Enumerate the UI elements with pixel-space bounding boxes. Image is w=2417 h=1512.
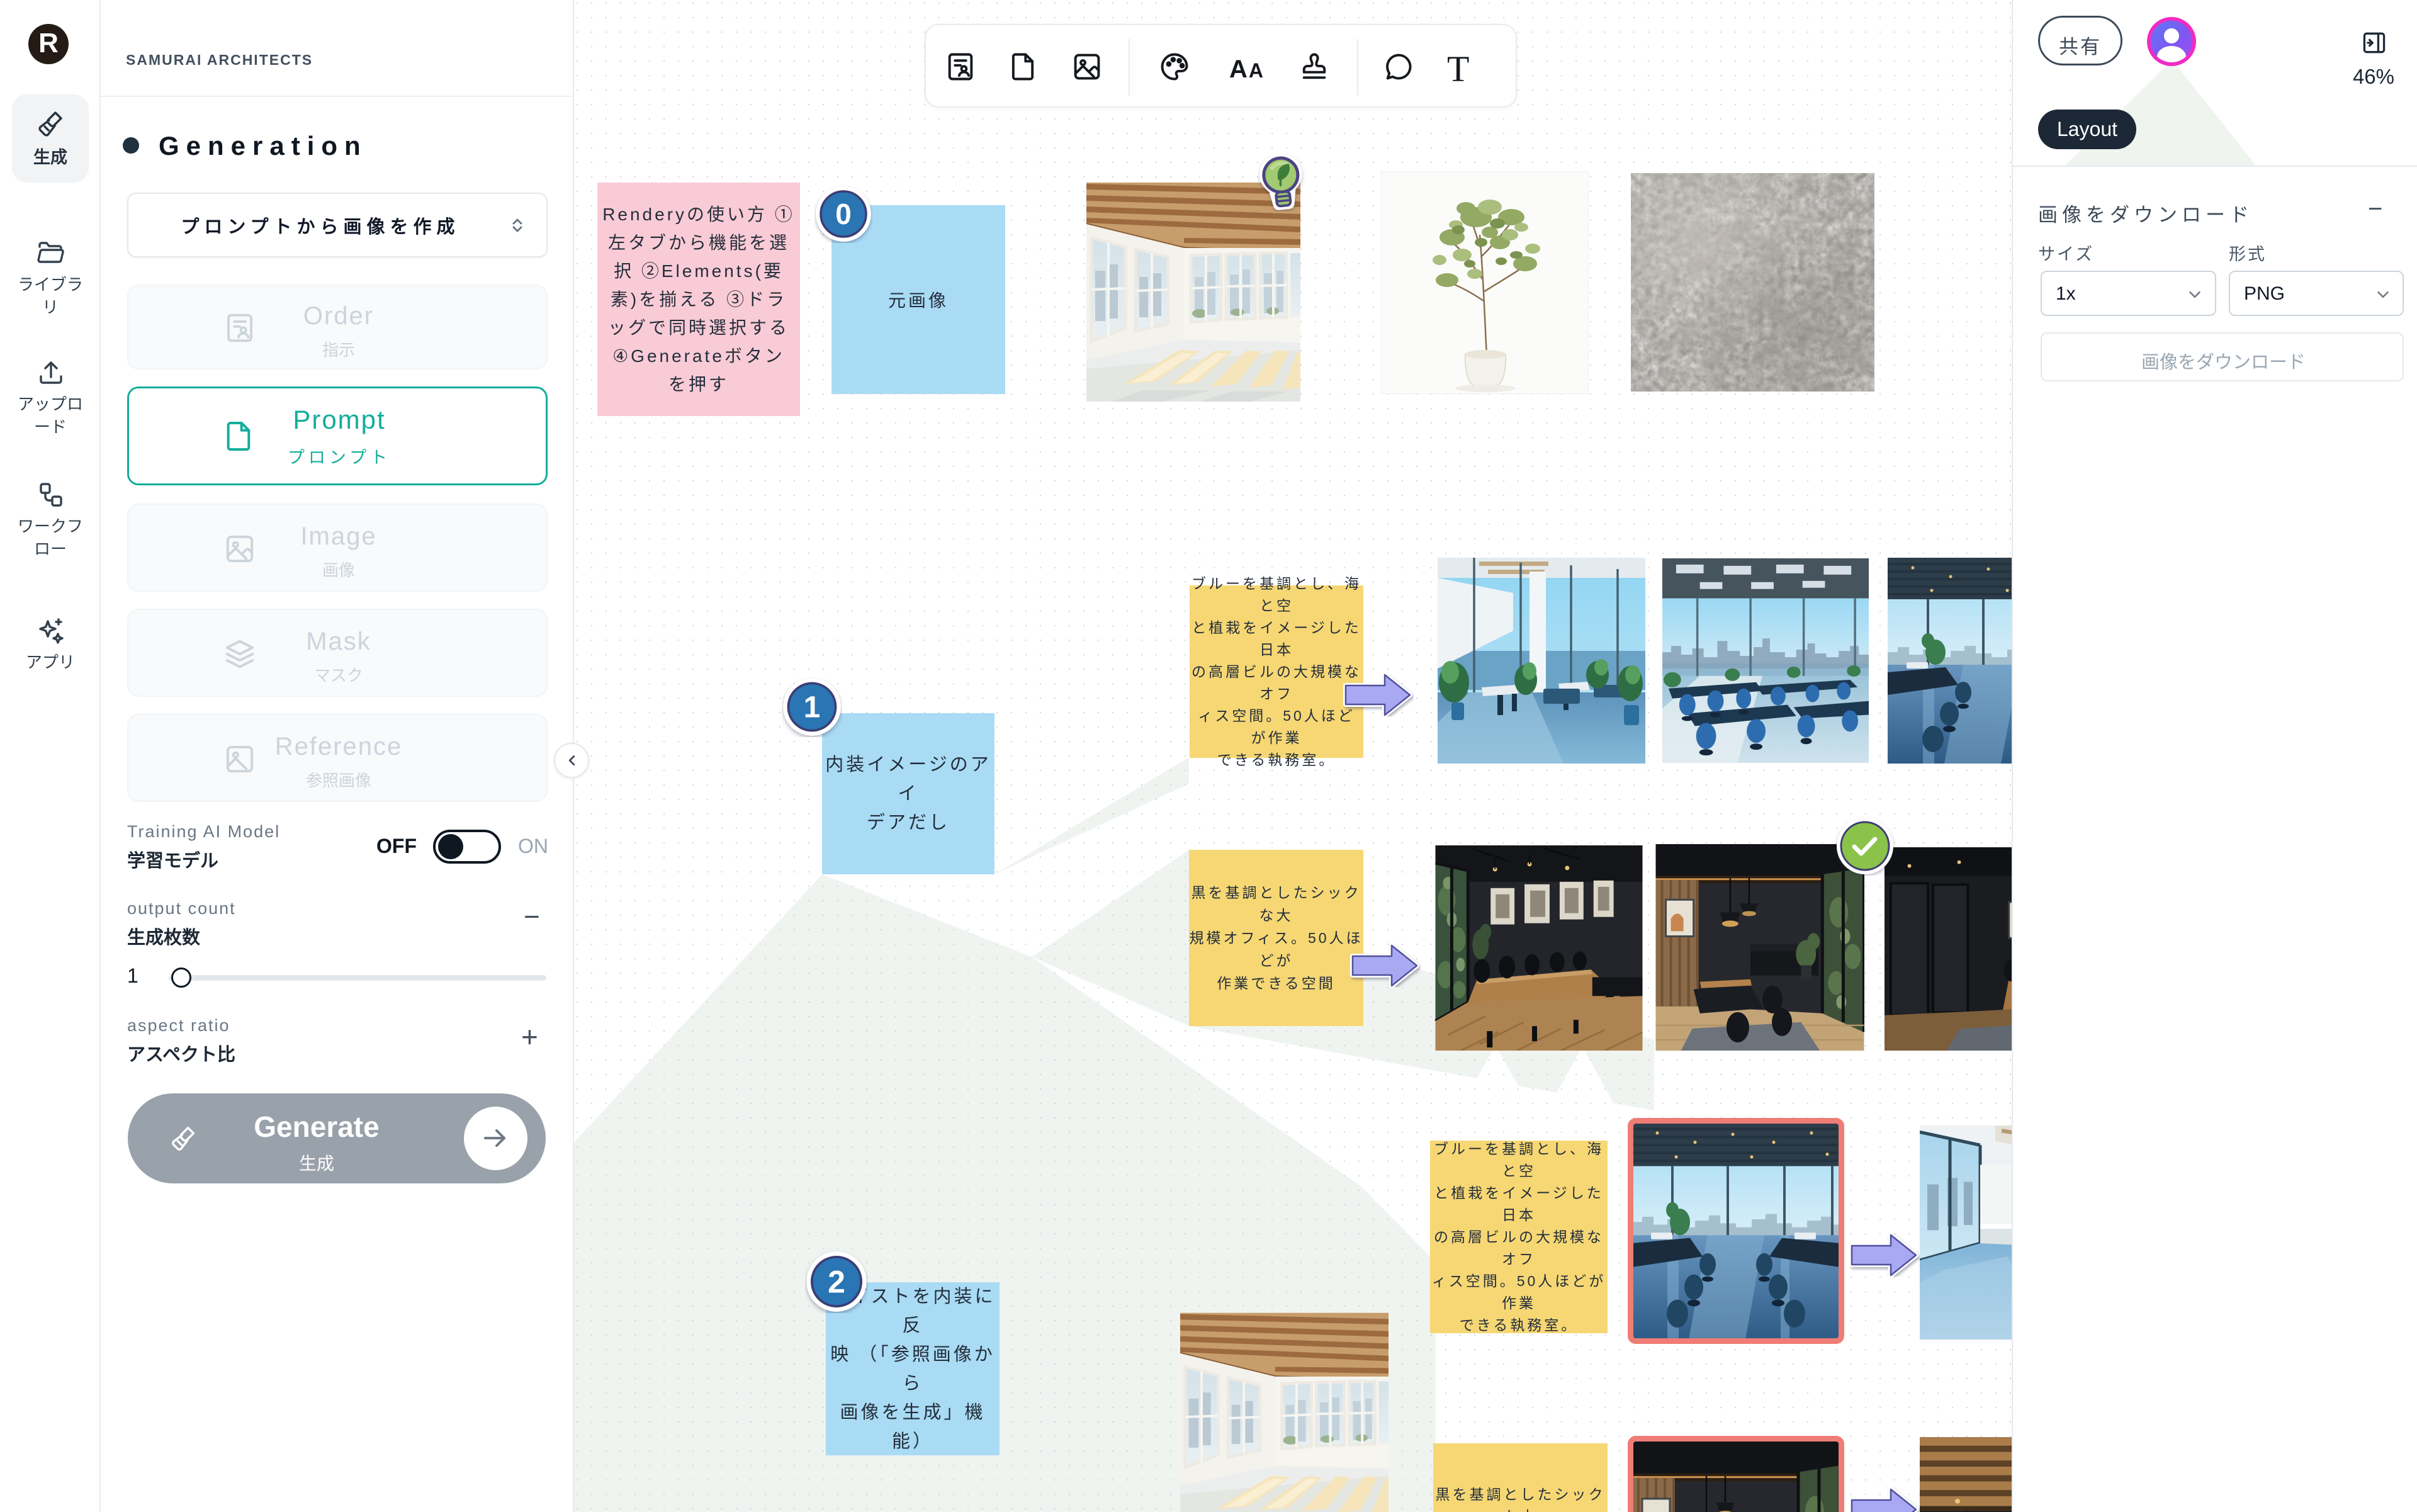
svg-text:0: 0 [835,198,852,230]
svg-text:1: 1 [804,691,821,725]
svg-text:2: 2 [828,1264,845,1299]
